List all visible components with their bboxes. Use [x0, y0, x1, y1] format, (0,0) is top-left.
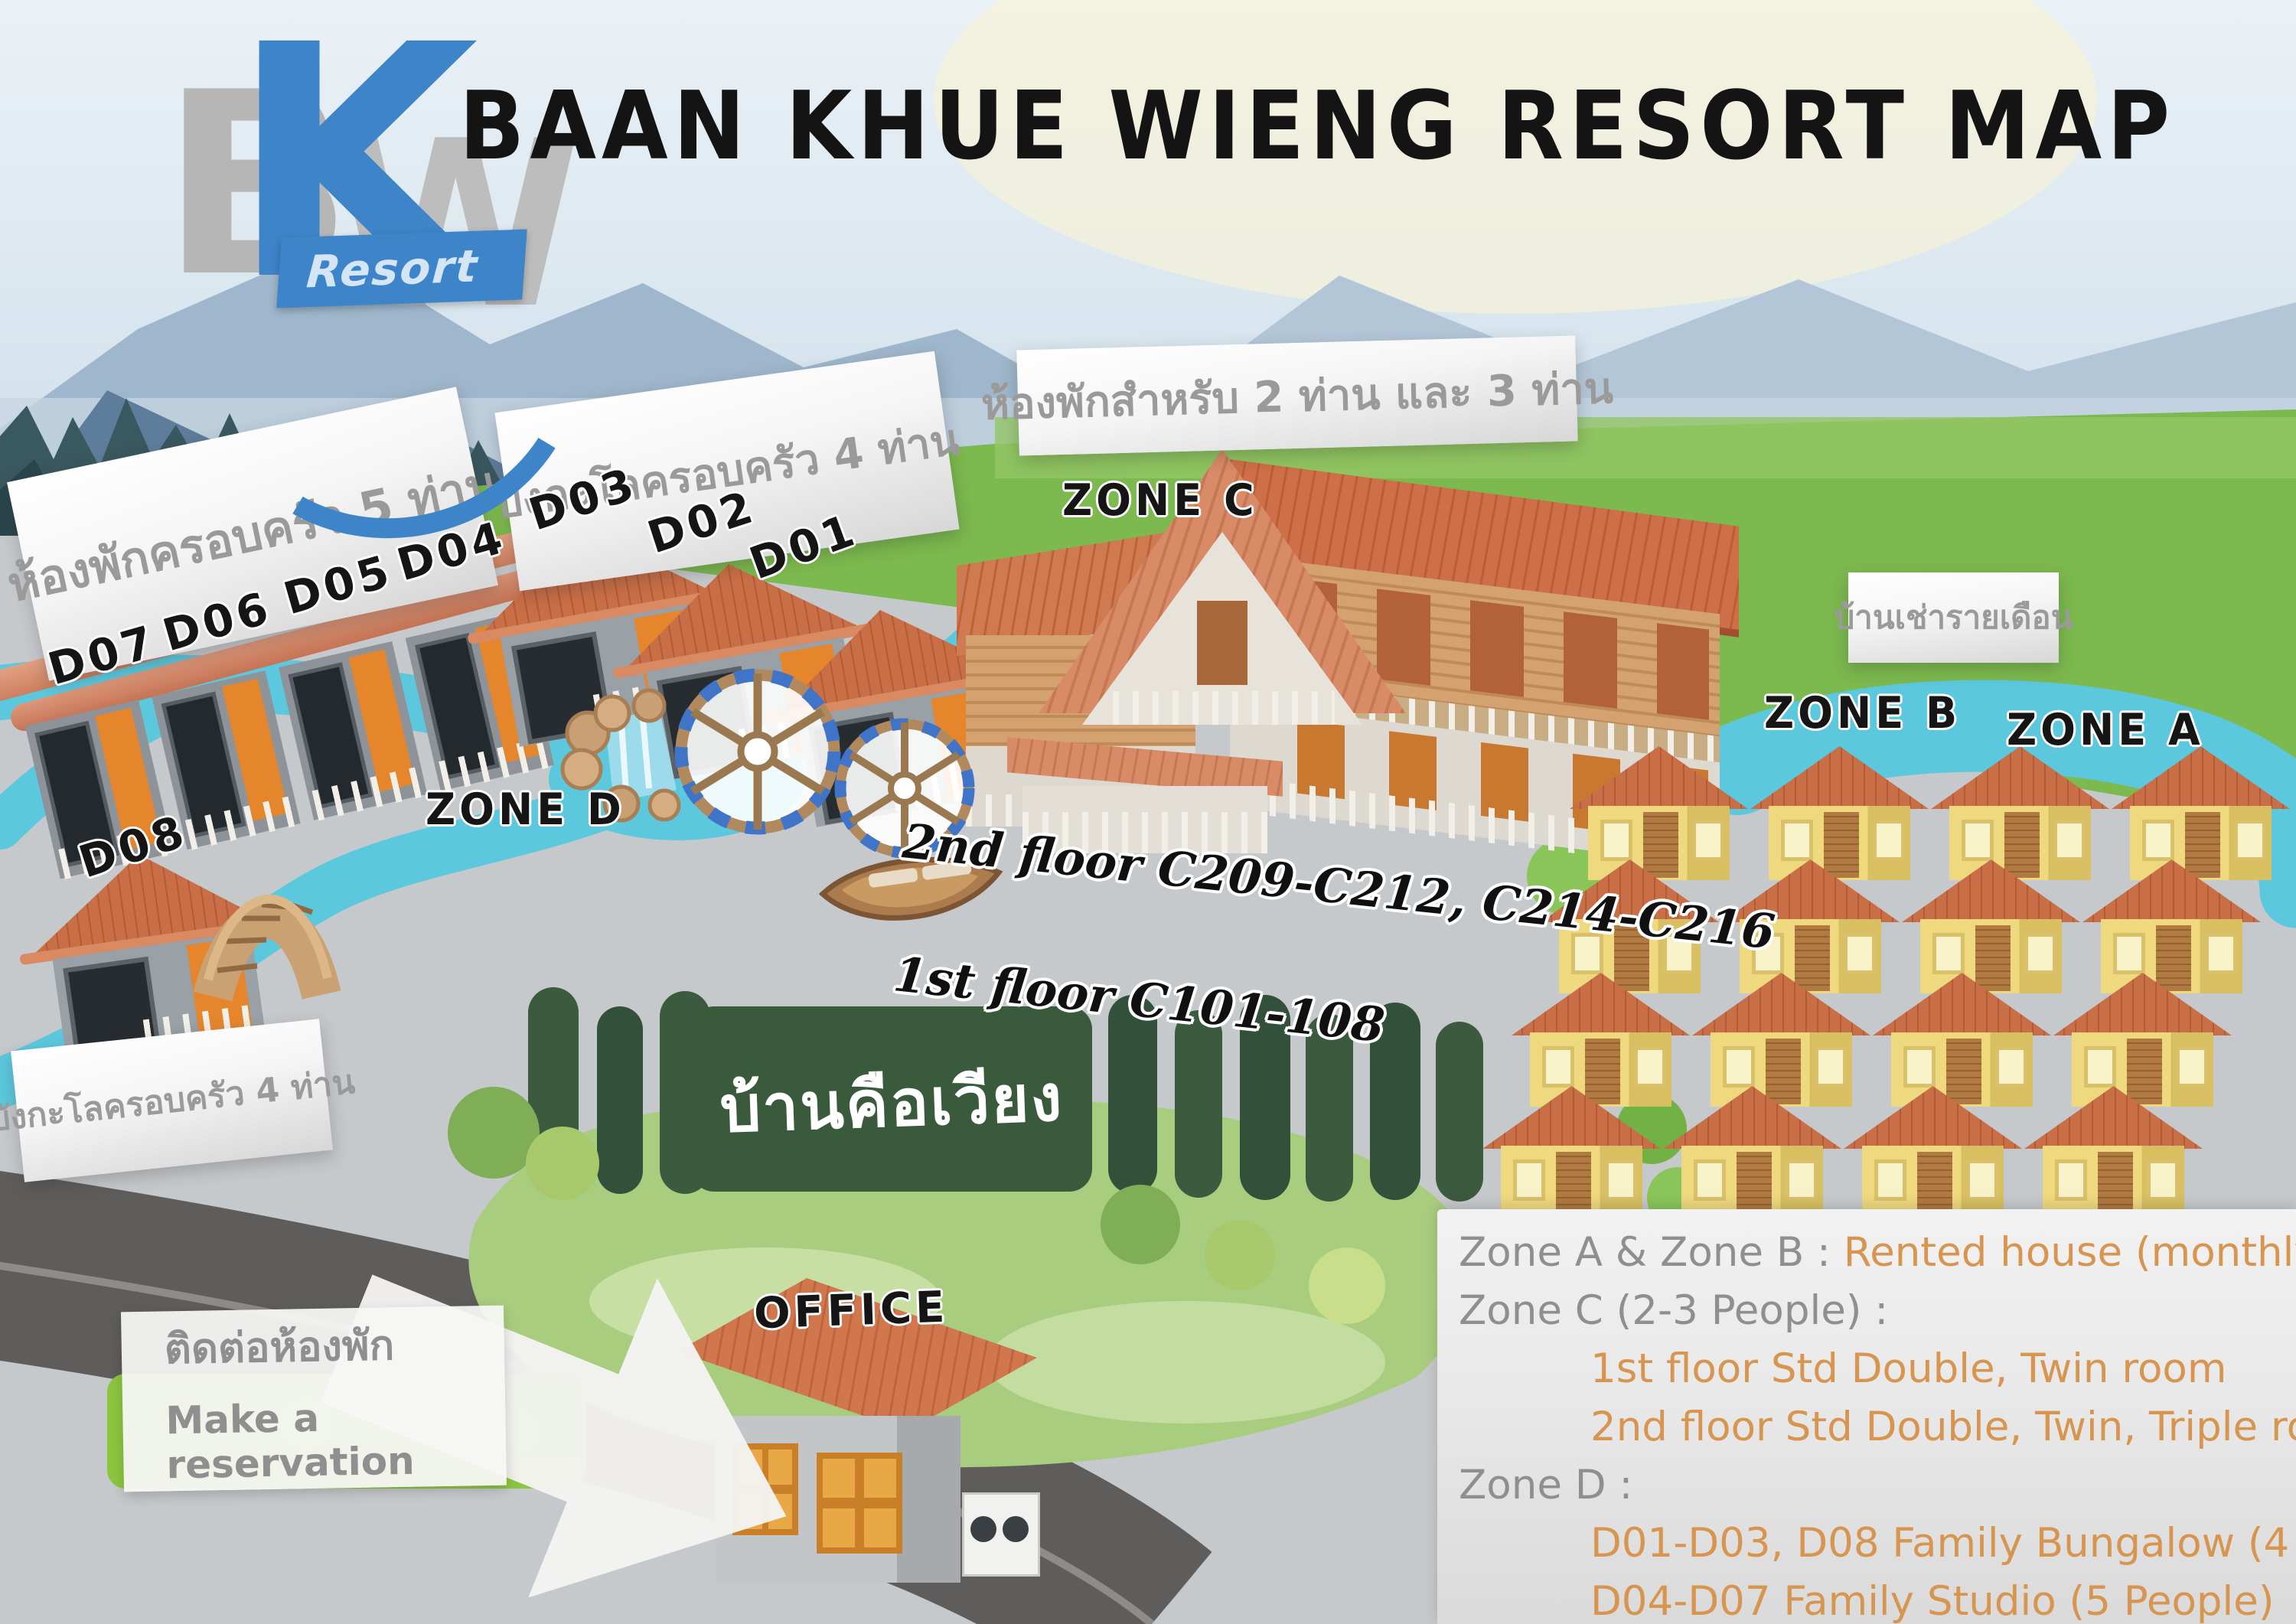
zone-d-label: ZONE D [426, 784, 625, 834]
zone-a-label: ZONE A [2007, 704, 2204, 755]
resort-map: ติดต่อห้องพัก Make a reservation ห้องพัก… [0, 0, 2296, 1624]
reservation-panel: ติดต่อห้องพัก Make a reservation [121, 1306, 507, 1492]
garden-sign-text: บ้านคือเวียง [690, 1009, 1094, 1195]
logo-resort-text: Resort [277, 240, 480, 299]
banner-rooms-2-3: ห้องพักสำหรับ 2 ท่าน และ 3 ท่าน [1016, 335, 1577, 455]
zone-c-label: ZONE C [1062, 474, 1258, 525]
reservation-thai-text: ติดต่อห้องพัก [164, 1309, 504, 1381]
legend-line-zone-c: Zone C (2-3 People) : [1459, 1287, 2296, 1335]
legend-zone-ab-value: Rented house (monthly) [1844, 1229, 2296, 1276]
reservation-english-text: Make a reservation [165, 1392, 507, 1487]
office-label: OFFICE [753, 1283, 949, 1339]
water-wheel-large [681, 673, 834, 830]
legend-line-zone-d: Zone D : [1459, 1462, 2296, 1509]
legend-zone-c-line2: 2nd floor Std Double, Twin, Triple room [1459, 1404, 2296, 1451]
wooden-bridge [208, 899, 328, 996]
legend-zone-c-line1: 1st floor Std Double, Twin room [1459, 1345, 2296, 1393]
legend-zone-ab-label: Zone A & Zone B : [1459, 1229, 1844, 1276]
legend-zone-d-line2: D04-D07 Family Studio (5 People) [1459, 1578, 2296, 1624]
logo-resort-ribbon: Resort [276, 229, 527, 308]
page-title: BAAN KHUE WIENG RESORT MAP [459, 72, 2175, 181]
zone-b-label: ZONE B [1764, 687, 1961, 738]
legend-line-zone-ab: Zone A & Zone B : Rented house (monthly) [1459, 1229, 2296, 1277]
legend-panel: Zone A & Zone B : Rented house (monthly)… [1437, 1209, 2296, 1624]
banner-monthly-rental: บ้านเช่ารายเดือน [1848, 572, 2059, 663]
legend-zone-d-line1: D01-D03, D08 Family Bungalow (4 People) [1459, 1520, 2296, 1567]
